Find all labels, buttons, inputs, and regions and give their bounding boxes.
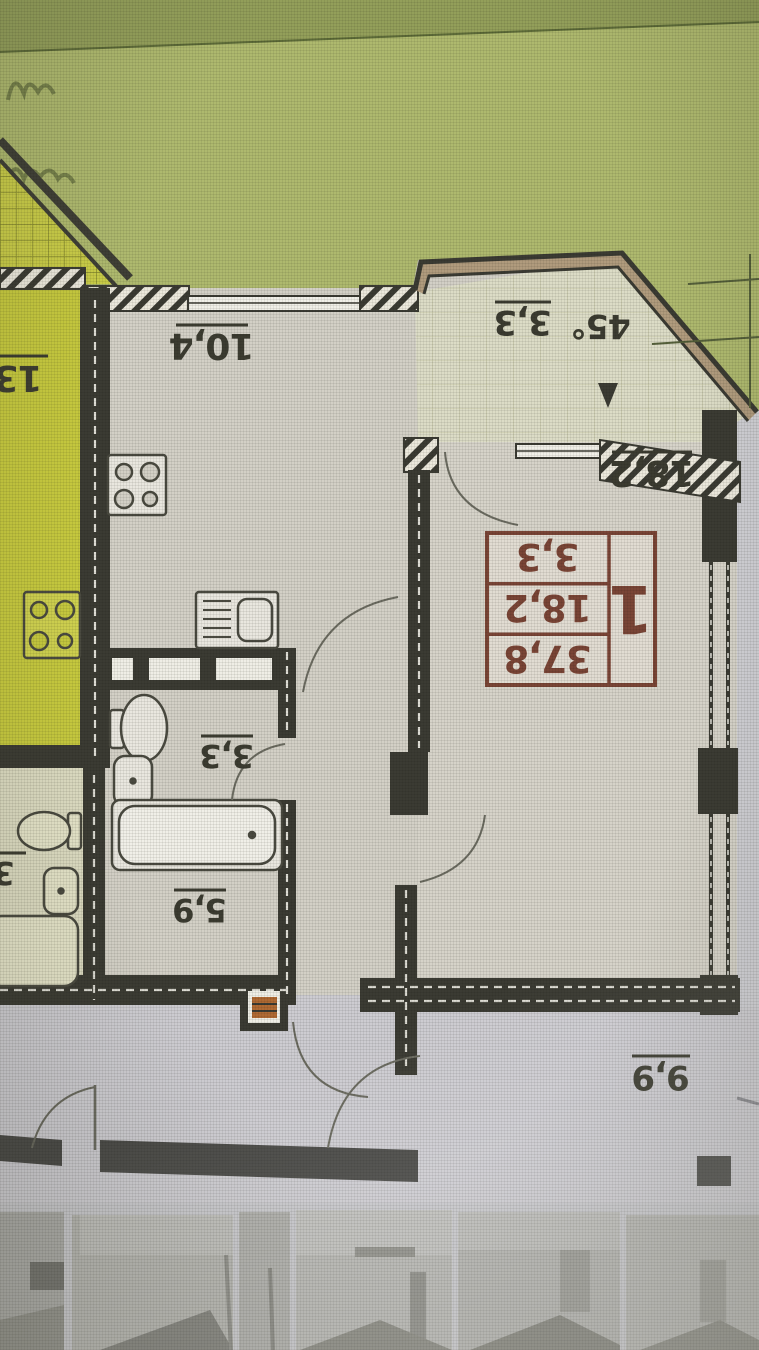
label-balcony-angle: 45° [571, 307, 630, 346]
neighbor-bathtub-icon [0, 916, 78, 986]
svg-text:45°: 45° [571, 307, 630, 346]
label-balcony-area: 3,3 [494, 302, 551, 342]
gallery-strip [0, 1210, 759, 1350]
gallery-thumbnail-4[interactable] [296, 1210, 452, 1350]
neighbor-stove-icon [24, 592, 80, 658]
stamp-living-area: 18,2 [504, 586, 591, 629]
neighbor-toilet-icon [18, 812, 81, 850]
gallery-thumbnail-6[interactable] [626, 1215, 759, 1350]
floor-plan-drawing: 10,4 3,3 5,9 18,2 3,3 45° 9,9 13, [0, 0, 759, 1350]
svg-text:10,4: 10,4 [170, 325, 255, 366]
floor-plan-photo: 10,4 3,3 5,9 18,2 3,3 45° 9,9 13, [0, 0, 759, 1350]
svg-text:18,2: 18,2 [610, 452, 695, 493]
label-neighbor-room-area: 13, [0, 356, 48, 398]
gallery-thumbnail-5[interactable] [458, 1212, 620, 1350]
svg-text:13,: 13, [0, 357, 42, 398]
label-corridor-area: 9,9 [632, 1056, 690, 1097]
gallery-thumbnail-3[interactable] [239, 1212, 290, 1350]
stove-icon [108, 455, 166, 515]
bathtub-icon [112, 800, 282, 870]
washbasin-icon [114, 756, 152, 806]
label-living-room-area: 18,2 [610, 452, 695, 493]
stamp-kitchen-area: 3,3 [517, 535, 580, 578]
kitchen-sink-icon [196, 592, 278, 648]
label-bathroom-area: 5,9 [173, 890, 227, 929]
room-living [418, 415, 737, 995]
neighbor-washbasin-icon [44, 868, 78, 914]
label-kitchen-area: 10,4 [170, 325, 255, 366]
svg-text:3: 3 [0, 854, 15, 892]
label-wc-area: 3,3 [200, 736, 254, 775]
svg-text:5,9: 5,9 [173, 891, 227, 929]
gallery-thumbnail-1[interactable] [0, 1212, 64, 1350]
gallery-thumbnail-2[interactable] [72, 1215, 233, 1350]
apartment-stamp: 1 37,8 18,2 3,3 [487, 533, 655, 685]
svg-text:3,3: 3,3 [494, 302, 551, 342]
svg-text:9,9: 9,9 [632, 1057, 689, 1097]
stamp-total-area: 37,8 [504, 637, 591, 680]
svg-text:3,3: 3,3 [200, 737, 254, 775]
stamp-apartment-number: 1 [609, 570, 654, 647]
